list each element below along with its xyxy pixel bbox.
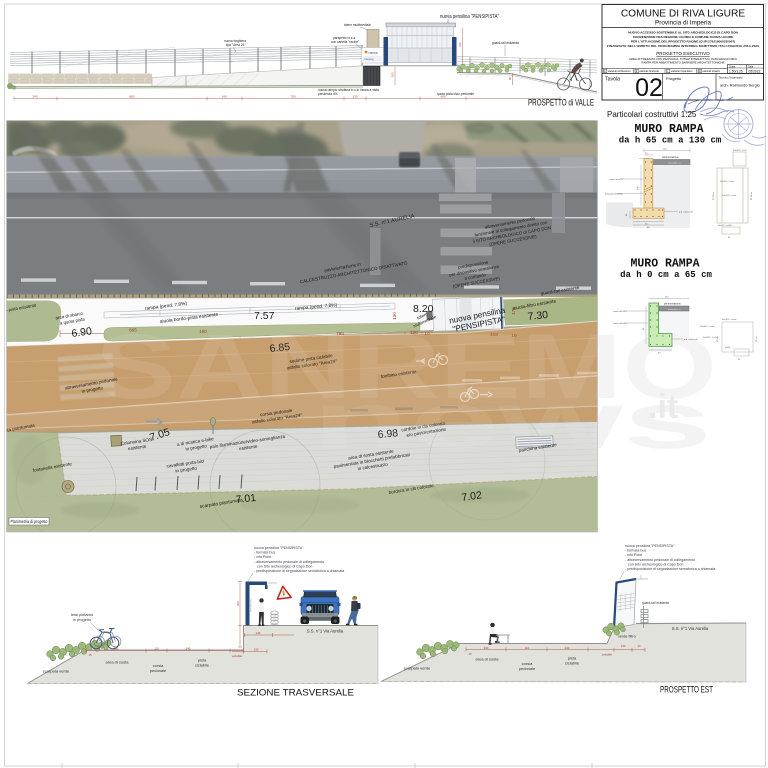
svg-text:80: 80	[508, 76, 512, 80]
svg-text:790: 790	[290, 94, 295, 98]
svg-text:ciclabile: ciclabile	[565, 661, 580, 666]
svg-text:Tavola: Tavola	[605, 77, 620, 83]
svg-text:240: 240	[565, 646, 570, 650]
svg-text:arch. Raimondo Sergio: arch. Raimondo Sergio	[720, 83, 760, 88]
svg-text:S.S. n°1 Via Aurelia: S.S. n°1 Via Aurelia	[307, 629, 344, 634]
svg-text:PENSIPISTA: PENSIPISTA	[250, 599, 253, 612]
svg-text:65 cm: 65 cm	[756, 336, 758, 342]
svg-text:scarpato verde: scarpato verde	[404, 666, 431, 671]
svg-text:MURO RAMPA: MURO RAMPA	[634, 123, 703, 136]
svg-text:- fermata bus: - fermata bus	[625, 549, 646, 553]
svg-text:FINANZIATO NELL'AMBITO DEL PRO: FINANZIATO NELL'AMBITO DEL PROGRAMMA INT…	[607, 44, 759, 48]
svg-text:Particolari costruttivi 1:25: Particolari costruttivi 1:25	[607, 110, 697, 119]
svg-text:- fermata bus: - fermata bus	[254, 551, 275, 555]
svg-text:05/2022: 05/2022	[749, 69, 761, 73]
svg-text:Provincia di Imperia: Provincia di Imperia	[655, 20, 712, 27]
svg-text:40: 40	[637, 644, 641, 648]
svg-text:65 cm: 65 cm	[717, 336, 719, 342]
svg-text:15: 15	[468, 652, 472, 656]
svg-text:- attraversamento pedonale di: - attraversamento pedonale di collegamen…	[625, 558, 695, 562]
svg-text:racine: racine	[369, 51, 378, 55]
svg-text:totem multimediale: totem multimediale	[344, 23, 371, 27]
svg-text:massetto c.a.: massetto c.a.	[668, 161, 681, 164]
svg-text:5ø10/20 - L=76: 5ø10/20 - L=76	[733, 150, 748, 152]
svg-text:verde filtro: verde filtro	[618, 635, 636, 639]
svg-text:.it: .it	[648, 388, 678, 426]
svg-text:MURO RAMPA: MURO RAMPA	[630, 258, 699, 271]
svg-text:240: 240	[32, 94, 37, 98]
svg-text:S.S. n°1 Via Aurelia: S.S. n°1 Via Aurelia	[672, 626, 709, 631]
svg-text:110: 110	[154, 647, 159, 651]
svg-text:variabile: variabile	[232, 654, 243, 658]
svg-text:SEZIONE TRASVERSALE: SEZIONE TRASVERSALE	[237, 688, 354, 698]
svg-text:da h 65 cm a 130 cm: da h 65 cm a 130 cm	[619, 136, 722, 146]
svg-text:area di sosta: area di sosta	[476, 657, 500, 662]
svg-text:310: 310	[458, 42, 462, 47]
svg-text:Data: Data	[748, 65, 754, 68]
svg-text:1:50/1:25: 1:50/1:25	[729, 69, 743, 73]
svg-text:elaborati Idraulici: elaborati Idraulici	[703, 70, 721, 73]
svg-text:nuova pensilina "PENSIPISTA": nuova pensilina "PENSIPISTA"	[625, 544, 675, 548]
svg-text:65 90 cm: 65 90 cm	[751, 191, 753, 200]
svg-text:- predisposizione di segnalazi: - predisposizione di segnalazione semafo…	[254, 569, 344, 573]
svg-text:cornici ø10/16: cornici ø10/16	[613, 310, 628, 313]
svg-text:PER L'ATTUAZIONE DEL PROGETTO: PER L'ATTUAZIONE DEL PROGETTO RACINE (CU…	[631, 40, 735, 44]
svg-text:elaborati Architettonici: elaborati Architettonici	[608, 70, 631, 73]
svg-text:65 90 cm: 65 90 cm	[713, 191, 715, 200]
svg-text:- attraversamento pedonale di: - attraversamento pedonale di collegamen…	[254, 560, 324, 564]
svg-text:ciclabile: ciclabile	[195, 663, 210, 668]
svg-text:da h 0 cm a 65 cm: da h 0 cm a 65 cm	[620, 270, 712, 280]
svg-text:COMUNE DI RIVA LIGURE: COMUNE DI RIVA LIGURE	[621, 9, 746, 20]
svg-text:260: 260	[236, 601, 240, 606]
svg-text:330: 330	[484, 646, 489, 650]
svg-text:5ø10/20 - L=xxx: 5ø10/20 - L=xxx	[722, 195, 736, 197]
svg-text:140: 140	[256, 631, 261, 635]
svg-text:Planimetria di progetto: Planimetria di progetto	[11, 519, 48, 524]
svg-text:15: 15	[88, 653, 92, 657]
svg-text:nuova pensilina "PENSIPISTA": nuova pensilina "PENSIPISTA"	[440, 14, 499, 20]
svg-text:bolzaioli ø10/20sp: bolzaioli ø10/20sp	[605, 194, 623, 196]
svg-text:105: 105	[391, 72, 395, 77]
svg-text:CONVENZIONE FRA REGIONE LIGURI: CONVENZIONE FRA REGIONE LIGURIA E COMUNE…	[633, 35, 733, 39]
svg-text:guard-rail esistente: guard-rail esistente	[492, 41, 519, 45]
svg-text:nuova pensilina "PENSIPISTA": nuova pensilina "PENSIPISTA"	[254, 546, 304, 550]
svg-text:PROSPETTO EST: PROSPETTO EST	[660, 685, 713, 695]
svg-text:pendenza 4%: pendenza 4%	[318, 92, 338, 96]
svg-text:330: 330	[114, 647, 119, 651]
svg-text:Scala: Scala	[729, 65, 736, 68]
svg-text:pavimentazione: pavimentazione	[662, 156, 679, 159]
svg-text:02: 02	[635, 74, 663, 102]
svg-text:guard-rail esistente: guard-rail esistente	[642, 601, 669, 605]
svg-text:scarpata verde: scarpata verde	[43, 669, 70, 674]
svg-text:Progetto: Progetto	[666, 76, 682, 81]
svg-text:240: 240	[186, 647, 191, 651]
svg-text:860: 860	[129, 94, 134, 98]
svg-text:- predisposizione di segnalazi: - predisposizione di segnalazione semafo…	[625, 567, 715, 571]
svg-text:Tecnico Incaricato: Tecnico Incaricato	[719, 76, 743, 80]
svg-text:PROGETTO ESECUTIVO: PROGETTO ESECUTIVO	[656, 51, 710, 56]
svg-text:massetto c.a.: massetto c.a.	[668, 308, 681, 311]
svg-text:130: 130	[254, 648, 259, 652]
svg-text:d.d. cornici ø8: d.d. cornici ø8	[679, 211, 694, 214]
svg-text:area di sosta: area di sosta	[106, 660, 130, 665]
svg-text:con Sito archeologico di Capo: con Sito archeologico di Capo Don	[628, 562, 683, 566]
svg-text:tipo "Area 24": tipo "Area 24"	[226, 43, 245, 47]
svg-text:ø8/20: ø8/20	[725, 347, 731, 349]
svg-text:con cartella "racine": con cartella "racine"	[331, 40, 359, 44]
svg-text:110: 110	[525, 646, 530, 650]
svg-text:130: 130	[621, 644, 626, 648]
svg-text:5ø10/20 - L=xxx: 5ø10/20 - L=xxx	[720, 181, 734, 183]
svg-text:Interreg: Interreg	[365, 57, 374, 61]
svg-text:M: M	[699, 71, 701, 73]
svg-text:pedonale: pedonale	[150, 668, 167, 673]
svg-text:RAMPA PER ABBATTIMENTO BARRIER: RAMPA PER ABBATTIMENTO BARRIERE ARCHITET…	[641, 61, 724, 65]
svg-text:pedonale: pedonale	[519, 666, 536, 671]
svg-text:400: 400	[440, 94, 445, 98]
svg-text:NUOVO ACCESSO SOSTENIBILE AL S: NUOVO ACCESSO SOSTENIBILE AL SITO ARCHEO…	[628, 31, 738, 35]
svg-text:elaborati Impiantistici: elaborati Impiantistici	[671, 70, 693, 73]
svg-text:con Sito archeologico di Capo: con Sito archeologico di Capo Don	[257, 564, 312, 568]
svg-text:5ø10/20 - L=xxx: 5ø10/20 - L=xxx	[722, 319, 736, 321]
svg-text:PROSPETTO di VALLE: PROSPETTO di VALLE	[528, 98, 594, 108]
svg-text:variabile: variabile	[602, 653, 613, 657]
svg-text:130: 130	[352, 94, 357, 98]
svg-text:cornici ø10/25: cornici ø10/25	[609, 178, 624, 181]
svg-text:- info Point: - info Point	[625, 553, 642, 557]
svg-text:telai portabici: telai portabici	[71, 613, 94, 617]
svg-text:ø10/20 - L=200: ø10/20 - L=200	[718, 225, 733, 227]
svg-text:140: 140	[221, 94, 226, 98]
svg-text:in progetto: in progetto	[73, 618, 91, 622]
svg-text:pavimentazione: pavimentazione	[664, 303, 681, 306]
svg-text:elaborati Strutturali: elaborati Strutturali	[640, 70, 660, 73]
svg-text:- info Point: - info Point	[254, 555, 271, 559]
